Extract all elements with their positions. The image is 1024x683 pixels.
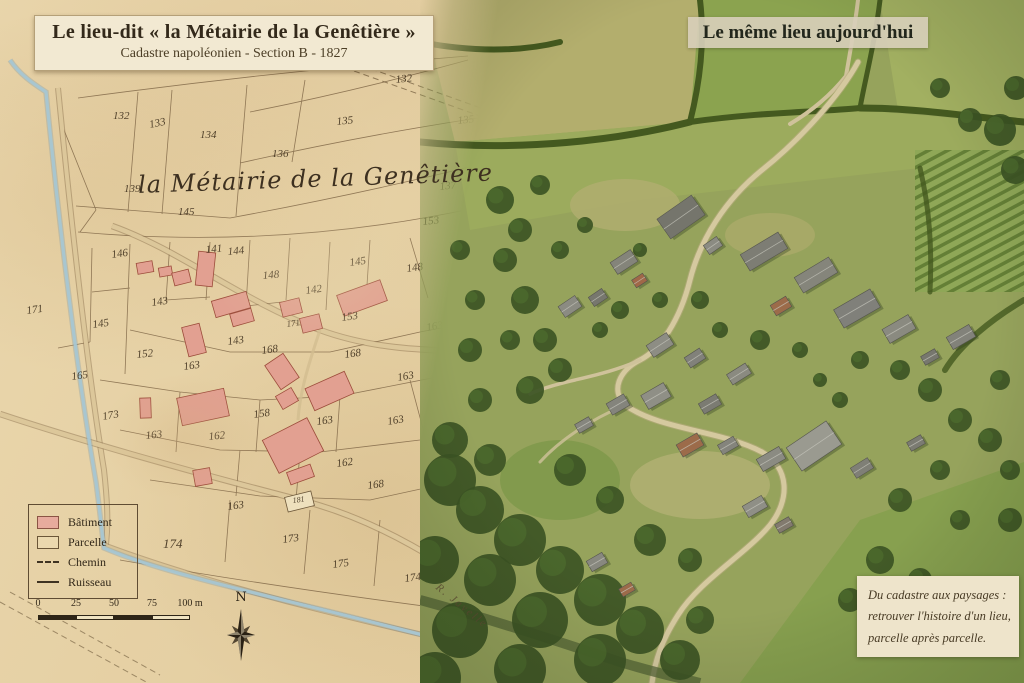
parcel-number: 163 <box>145 428 163 442</box>
legend-parcel-swatch <box>37 536 59 549</box>
map-subtitle: Cadastre napoléonien - Section B - 1827 <box>35 46 433 62</box>
parcel-number: 163 <box>386 413 405 428</box>
composite-map-photo-infographic: 1321321331341351351361371391451531461411… <box>0 0 1024 683</box>
parcel-number: 148 <box>262 269 280 282</box>
compass-star-icon <box>212 605 270 665</box>
scale-bar: 0255075100 m <box>38 598 228 630</box>
compass-north-label: N <box>212 590 270 605</box>
parcel-number: 168 <box>344 347 363 361</box>
building-footprint <box>265 353 299 389</box>
parcel-number: 136 <box>272 148 289 160</box>
legend-item: Bâtiment <box>37 512 129 532</box>
parcel-number: 132 <box>113 110 130 122</box>
building-footprint <box>262 418 323 474</box>
scale-tick-label: 100 m <box>177 598 202 609</box>
map-title-box: Le lieu-dit « la Métairie de la Genêtièr… <box>34 15 434 71</box>
caption-line: Du cadastre aux paysages : <box>868 585 1008 606</box>
building-footprint <box>182 323 207 356</box>
scale-bar-segment <box>38 615 76 620</box>
scale-tick-label: 75 <box>147 598 157 609</box>
parcel-number: 168 <box>367 478 386 492</box>
map-legend: BâtimentParcelleCheminRuisseau <box>28 504 138 599</box>
parcel-number: 165 <box>71 369 90 383</box>
legend-building-swatch <box>37 516 59 529</box>
photo-title-box: Le même lieu aujourd'hui <box>688 17 928 48</box>
parcel-number: 173 <box>101 408 120 423</box>
parcel-number: 173 <box>282 532 301 546</box>
legend-path-swatch <box>37 561 59 563</box>
parcel-number: 174 <box>163 536 183 551</box>
legend-label: Parcelle <box>68 535 107 550</box>
legend-label: Chemin <box>68 555 106 570</box>
parcel-number: 171 <box>286 317 301 329</box>
parcel-number: 143 <box>151 295 170 309</box>
building-footprint <box>136 261 154 275</box>
legend-label: Bâtiment <box>68 515 112 530</box>
scale-tick-label: 25 <box>71 598 81 609</box>
parcel-number: 146 <box>111 247 130 261</box>
caption-line: retrouver l'histoire d'un lieu, <box>868 606 1008 627</box>
parcel-number: 152 <box>136 347 154 361</box>
parcel-number: 163 <box>183 359 202 373</box>
building-footprint <box>279 298 302 317</box>
scale-bar-segment <box>152 615 190 620</box>
scale-tick-label: 0 <box>36 598 41 609</box>
scale-bar-segment <box>114 615 152 620</box>
legend-stream-swatch <box>37 581 59 583</box>
parcel-number: 145 <box>349 255 368 269</box>
parcel-number: 181 <box>292 494 305 505</box>
parcel-number: 143 <box>227 334 246 348</box>
parcel-number: 153 <box>341 310 360 324</box>
caption-line: parcelle après parcelle. <box>868 628 1008 649</box>
parcel-number: 145 <box>92 317 111 331</box>
parcel-number: 163 <box>227 499 246 513</box>
parcel-number: 162 <box>336 456 355 470</box>
parcel-number: 142 <box>305 283 324 297</box>
legend-item: Chemin <box>37 552 129 572</box>
building-footprint <box>172 269 192 286</box>
scale-bar-segment <box>76 615 114 620</box>
building-footprint <box>158 266 172 277</box>
parcel-number: 141 <box>205 243 222 256</box>
parcel-number: 144 <box>227 245 245 258</box>
scale-tick-label: 50 <box>109 598 119 609</box>
building-footprint <box>177 388 230 425</box>
caption-box: Du cadastre aux paysages :retrouver l'hi… <box>857 576 1019 657</box>
parcel-number: 171 <box>26 303 44 317</box>
building-footprint <box>275 388 298 410</box>
parcel-number: 168 <box>261 343 280 357</box>
building-footprint <box>195 251 215 287</box>
parcel-number: 145 <box>178 206 195 218</box>
building-footprint <box>140 398 152 418</box>
parcel-number: 162 <box>208 429 226 443</box>
building-footprint <box>193 468 213 487</box>
building-footprint <box>305 371 354 410</box>
legend-label: Ruisseau <box>68 575 111 590</box>
map-title: Le lieu-dit « la Métairie de la Genêtièr… <box>35 21 433 44</box>
legend-item: Ruisseau <box>37 572 129 592</box>
parcel-number: 132 <box>395 72 413 86</box>
parcel-number: 158 <box>253 407 272 421</box>
parcel-number: 163 <box>316 414 335 428</box>
parcel-number: 134 <box>200 129 217 141</box>
compass-rose: N <box>212 590 270 668</box>
parcel-number: 135 <box>336 114 354 128</box>
building-footprints <box>136 251 387 512</box>
parcel-number: 133 <box>148 116 167 131</box>
legend-item: Parcelle <box>37 532 129 552</box>
parcel-number: 175 <box>332 557 351 571</box>
